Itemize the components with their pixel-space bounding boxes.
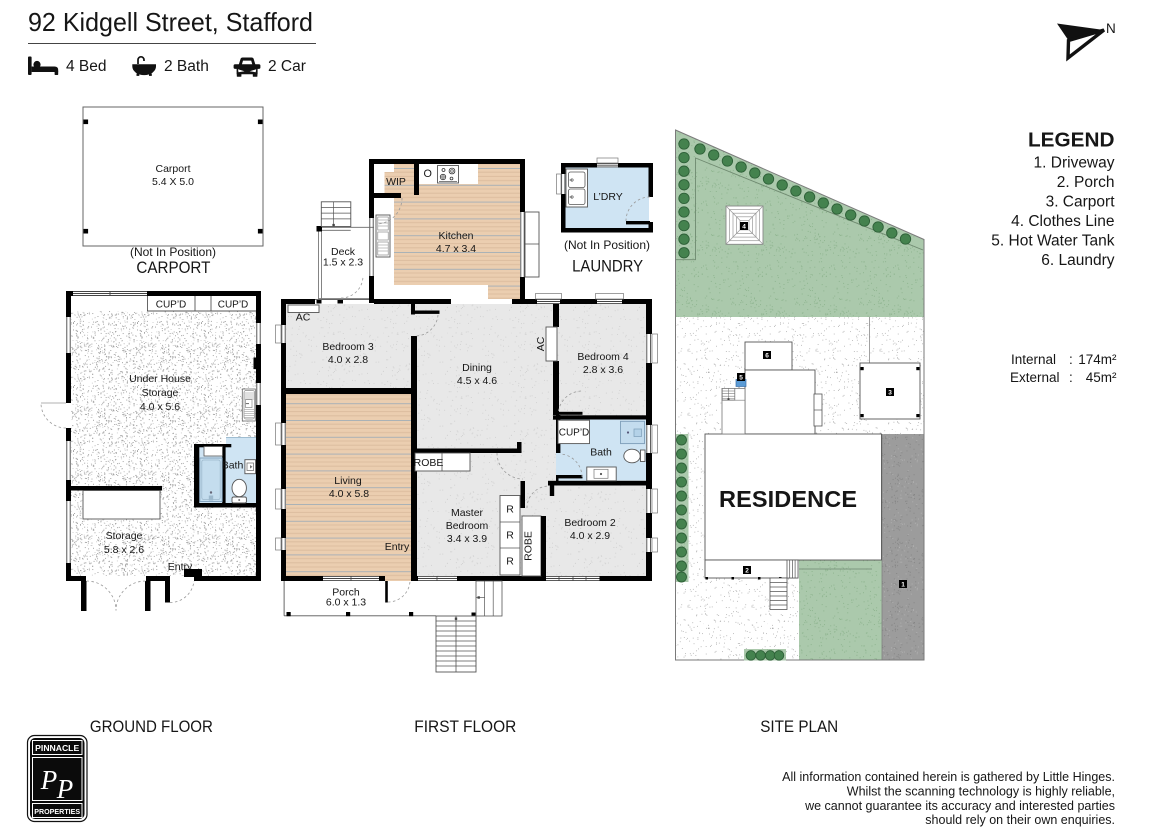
svg-text:R: R	[506, 530, 514, 542]
svg-text:4 Bed: 4 Bed	[66, 58, 107, 75]
svg-text:Entry: Entry	[385, 541, 410, 553]
svg-text:R: R	[506, 556, 514, 568]
svg-text:3: 3	[888, 390, 892, 397]
svg-text:CUP’D: CUP’D	[156, 300, 187, 311]
svg-text:4: 4	[742, 224, 746, 231]
svg-text:Whilst the scanning technology: Whilst the scanning technology is highly…	[847, 785, 1115, 799]
svg-text:1: 1	[901, 582, 905, 589]
svg-text:Master: Master	[451, 507, 484, 519]
svg-text:Bedroom: Bedroom	[446, 520, 489, 532]
svg-text:Kitchen: Kitchen	[438, 230, 473, 242]
svg-text::: :	[1069, 352, 1073, 367]
svg-text:should rely on their own enqui: should rely on their own enquiries.	[925, 813, 1115, 827]
svg-text:Storage: Storage	[106, 530, 143, 542]
svg-text:Bath: Bath	[590, 447, 612, 459]
svg-text:2. Porch: 2. Porch	[1057, 174, 1115, 191]
svg-text:4. Clothes Line: 4. Clothes Line	[1011, 213, 1114, 230]
svg-text:(Not In Position): (Not In Position)	[564, 238, 650, 252]
svg-text:R: R	[506, 504, 514, 516]
svg-text:6.0 x 1.3: 6.0 x 1.3	[326, 597, 366, 609]
svg-text:CUP’D: CUP’D	[218, 300, 249, 311]
svg-text:Living: Living	[334, 475, 362, 487]
svg-text:2.8 x 3.6: 2.8 x 3.6	[583, 364, 623, 376]
svg-text:5.4 X 5.0: 5.4 X 5.0	[152, 176, 194, 188]
svg-text:3. Carport: 3. Carport	[1046, 194, 1116, 211]
svg-text:WIP: WIP	[386, 176, 406, 188]
svg-text:1.5 x 2.3: 1.5 x 2.3	[323, 257, 363, 269]
svg-text:we cannot guarantee its accura: we cannot guarantee its accuracy and int…	[804, 799, 1115, 813]
svg-text:CARPORT: CARPORT	[136, 259, 210, 277]
svg-text:Bedroom 4: Bedroom 4	[577, 351, 629, 363]
svg-text:4.7 x 3.4: 4.7 x 3.4	[436, 243, 476, 255]
svg-text:3.4 x 3.9: 3.4 x 3.9	[447, 533, 487, 545]
svg-text:FIRST FLOOR: FIRST FLOOR	[414, 718, 516, 736]
svg-text:ROBE: ROBE	[523, 531, 535, 561]
svg-text:45m²: 45m²	[1086, 370, 1117, 385]
svg-text:PROPERTIES: PROPERTIES	[34, 807, 80, 816]
svg-text:92 Kidgell Street, Stafford: 92 Kidgell Street, Stafford	[28, 7, 313, 37]
svg-text:6: 6	[765, 353, 769, 360]
svg-text:1. Driveway: 1. Driveway	[1034, 155, 1115, 172]
svg-text:4.0 x 2.9: 4.0 x 2.9	[570, 530, 610, 542]
svg-text:AC: AC	[535, 336, 547, 351]
svg-text:P: P	[40, 765, 58, 795]
svg-text:Bath: Bath	[222, 460, 244, 472]
svg-text:Dining: Dining	[462, 362, 492, 374]
svg-text:2: 2	[745, 568, 749, 575]
svg-text:5. Hot Water Tank: 5. Hot Water Tank	[991, 233, 1114, 250]
svg-text:Carport: Carport	[155, 163, 190, 175]
svg-text:(Not In Position): (Not In Position)	[130, 245, 216, 259]
svg-text:Bedroom 2: Bedroom 2	[564, 517, 616, 529]
svg-text:P: P	[56, 774, 74, 804]
svg-text:2 Bath: 2 Bath	[164, 58, 209, 75]
svg-text:All information contained here: All information contained herein is gath…	[782, 770, 1115, 784]
svg-text:4.0 x 5.8: 4.0 x 5.8	[329, 488, 369, 500]
svg-text:External: External	[1010, 370, 1060, 385]
svg-text:L’DRY: L’DRY	[593, 191, 623, 203]
svg-text:GROUND FLOOR: GROUND FLOOR	[90, 718, 213, 736]
svg-text:AC: AC	[296, 312, 311, 324]
svg-text:5.8 x 2.6: 5.8 x 2.6	[104, 544, 144, 556]
svg-text::: :	[1069, 370, 1073, 385]
svg-text:RESIDENCE: RESIDENCE	[719, 486, 857, 512]
svg-text:ROBE: ROBE	[414, 457, 444, 469]
svg-text:LEGEND: LEGEND	[1028, 129, 1115, 152]
svg-text:O: O	[424, 168, 432, 180]
svg-text:N: N	[1106, 21, 1116, 36]
svg-text:4.0 x 2.8: 4.0 x 2.8	[328, 354, 368, 366]
svg-text:174m²: 174m²	[1078, 352, 1117, 367]
svg-text:Bedroom 3: Bedroom 3	[322, 341, 374, 353]
svg-text:Storage: Storage	[142, 387, 179, 399]
svg-text:Internal: Internal	[1011, 352, 1056, 367]
svg-text:Under House: Under House	[129, 373, 191, 385]
svg-text:4.5 x 4.6: 4.5 x 4.6	[457, 375, 497, 387]
svg-text:5: 5	[739, 375, 743, 382]
svg-text:SITE PLAN: SITE PLAN	[760, 718, 838, 736]
svg-text:4.0 x 5.6: 4.0 x 5.6	[140, 401, 180, 413]
svg-text:CUP’D: CUP’D	[559, 428, 590, 439]
svg-text:LAUNDRY: LAUNDRY	[572, 258, 643, 276]
svg-text:PINNACLE: PINNACLE	[35, 743, 79, 753]
svg-text:6. Laundry: 6. Laundry	[1041, 252, 1114, 269]
svg-text:2 Car: 2 Car	[268, 58, 306, 75]
